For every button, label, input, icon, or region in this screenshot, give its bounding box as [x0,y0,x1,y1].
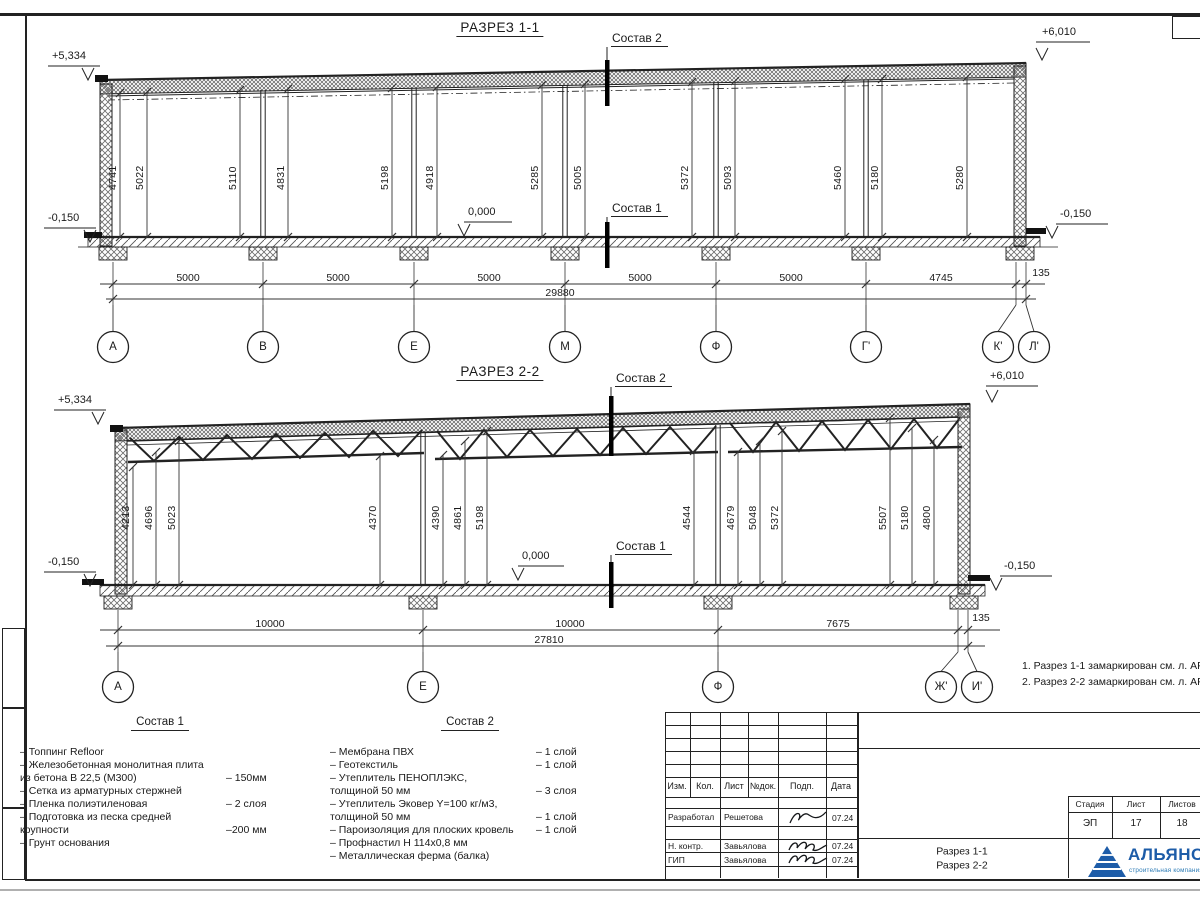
dimension-value: 4390 [430,505,442,530]
stamp-line [1160,796,1161,838]
legend-item-text: – Грунт основания [20,837,226,850]
legend-item: – Мембрана ПВХ– 1 слой [330,746,610,759]
legend-item: – Металлическая ферма (балка) [330,850,610,863]
stamp-line [665,797,857,798]
drawing-sheet: РАЗРЕЗ 1-1 Состав 2 Состав 1 +5,334 +6,0… [0,0,1200,900]
stamp-line [1068,796,1200,797]
stamp-line [665,764,857,765]
dimension-value: 5372 [769,505,781,530]
legend-item-value: – 2 слоя [226,798,300,811]
frame-left [25,13,27,880]
stamp-line [665,808,857,809]
stamp-header: Кол. [696,781,714,791]
legend-item: – Утеплитель ПЕНОПЛЭКС, толщиной 50 мм– … [330,772,610,798]
dimension-value: 4918 [424,165,436,190]
stamp-header: Лист [724,781,744,791]
axis-label: Ф [712,341,721,353]
section1-sostav1-label: Состав 1 [611,201,668,217]
dimension-value: 4861 [452,505,464,530]
dimension-value: 4544 [681,505,693,530]
section1-title: РАЗРЕЗ 1-1 [456,20,543,37]
legend-item-text: – Пленка полиэтиленовая [20,798,226,811]
stamp-header: Подп. [790,781,814,791]
dimension-label: 10000 [255,618,284,630]
legend-item-text: – Металлическая ферма (балка) [330,850,536,863]
stamp-name: Решетова [724,812,763,822]
stamp-role: Н. контр. [668,841,703,851]
dimension-value: 5022 [134,165,146,190]
section2-sostav1-label: Состав 1 [615,539,672,555]
legend-item: – Геотекстиль– 1 слой [330,759,610,772]
legend-item-text: – Топпинг Refloor [20,746,226,759]
legend-item-text: – Утеплитель Эковер Y=100 кг/м3, толщино… [330,798,536,824]
stamp-line [1068,812,1200,813]
stamp-header: Дата [831,781,851,791]
dimension-value: 4679 [725,505,737,530]
dimension-value: 5005 [572,165,584,190]
legend-item-value: – 3 слоя [536,785,610,798]
legend-item-text: – Железобетонная монолитная плита из бет… [20,759,226,785]
stamp-line [857,838,1200,839]
legend1-title: Состав 1 [131,716,189,731]
sheets-total-header: Листов [1168,799,1196,809]
stamp-header: Изм. [667,781,686,791]
dimension-value: 5372 [679,165,691,190]
dimension-value: 5023 [166,505,178,530]
axis-label: М [560,341,570,353]
legend-item-value: – 1 слой [536,746,610,759]
dimension-label: 10000 [555,618,584,630]
frame-top [0,13,1200,16]
stage-value: ЭП [1083,818,1097,829]
dimension-value: 4800 [921,505,933,530]
stamp-header: №док. [750,781,776,791]
note-line: 2. Разрез 2-2 замаркирован см. л. АР-1 [1022,674,1200,690]
elevation-label: +5,334 [58,394,92,406]
legend-item: – Железобетонная монолитная плита из бет… [20,759,300,785]
stamp-date: 07.24 [832,813,853,823]
legend-item-value: – 1 слой [536,759,610,772]
axis-label: А [109,341,117,353]
legend-item-value: – 1 слой [536,824,610,837]
dimension-value: 4831 [275,165,287,190]
dimension-value: 5048 [747,505,759,530]
legend-item-value: – 150мм [226,772,300,785]
elevation-label: +6,010 [1042,26,1076,38]
dimension-value: 5280 [954,165,966,190]
elevation-label: -0,150 [1004,560,1035,572]
stamp-role: ГИП [668,855,685,865]
section1-sostav2-label: Состав 2 [611,31,668,47]
axis-label: Е [419,681,427,693]
dimension-value: 4696 [143,505,155,530]
legend-sostav-2: Состав 2 – Мембрана ПВХ– 1 слой – Геотек… [330,712,610,863]
dimension-label: 135 [972,612,990,624]
axis-label: Ф [714,681,723,693]
legend-item: – Подготовка из песка средней крупности–… [20,811,300,837]
legend-item-text: – Геотекстиль [330,759,536,772]
stamp-line [720,712,721,878]
stamp-line [665,725,857,726]
legend-item: – Пленка полиэтиленовая– 2 слоя [20,798,300,811]
dimension-value: 5198 [474,505,486,530]
stamp-name: Завьялова [724,841,766,851]
stage-header: Стадия [1076,799,1105,809]
stamp-line [665,751,857,752]
dimension-value: 5460 [832,165,844,190]
stamp-line [778,712,779,878]
elevation-label: +5,334 [52,50,86,62]
legend-item: – Профнастил Н 114х0,8 мм [330,837,610,850]
stamp-line [1112,796,1113,838]
legend2-title: Состав 2 [441,716,499,731]
stamp-date: 07.24 [832,841,853,851]
total-dimension-label: 27810 [534,634,563,646]
dimension-value: 5507 [877,505,889,530]
drawing-name: Разрез 1-1 Разрез 2-2 [936,846,988,873]
axis-label: В [259,341,267,353]
sheets-total: 18 [1176,818,1187,829]
elevation-label: +6,010 [990,370,1024,382]
axis-label: Л' [1029,341,1039,353]
margin-stamp-box [2,807,25,880]
stamp-name: Завьялова [724,855,766,865]
elevation-label: -0,150 [48,556,79,568]
axis-label: Е [410,341,418,353]
dimension-label: 4745 [929,272,952,284]
dimension-label: 5000 [628,272,651,284]
dimension-value: 4370 [367,505,379,530]
axis-label: А [114,681,122,693]
axis-label: К' [994,341,1003,353]
stamp-line [665,866,857,867]
legend-item: – Топпинг Refloor [20,746,300,759]
stamp-line [665,738,857,739]
dimension-label: 5000 [779,272,802,284]
legend-item-text: – Утеплитель ПЕНОПЛЭКС, толщиной 50 мм [330,772,536,798]
legend-item-text: – Подготовка из песка средней крупности [20,811,226,837]
stamp-date: 07.24 [832,855,853,865]
stamp-line [665,826,857,827]
logo-company-name: АЛЬЯНС [1128,845,1200,865]
dimension-label: 5000 [326,272,349,284]
dimension-value: 4213 [120,505,132,530]
section2-title: РАЗРЕЗ 2-2 [456,364,543,381]
margin-stamp-box [2,628,25,709]
legend-item-text: – Профнастил Н 114х0,8 мм [330,837,536,850]
sheet-header: Лист [1127,799,1145,809]
elevation-label: -0,150 [1060,208,1091,220]
dimension-value: 5285 [529,165,541,190]
legend-item-text: – Сетка из арматурных стержней [20,785,226,798]
section2-sostav2-label: Состав 2 [615,371,672,387]
drawing-notes: 1. Разрез 1-1 замаркирован см. л. АР-15 … [1022,658,1200,690]
dimension-value: 5180 [869,165,881,190]
stamp-line [1068,796,1069,878]
sheet-number: 17 [1130,818,1141,829]
legend-item-value: –200 мм [226,824,300,837]
axis-label: Ж' [935,681,948,693]
corner-stamp-box [1172,16,1200,39]
dimension-label: 7675 [826,618,849,630]
stamp-line [857,712,859,878]
dimension-value: 5110 [227,166,239,190]
dimension-value: 5198 [379,165,391,190]
stamp-role: Разработал [668,812,714,822]
axis-label: И' [972,681,982,693]
dimension-label: 5000 [477,272,500,284]
legend-item-value: – 1 слой [536,811,610,824]
note-line: 1. Разрез 1-1 замаркирован см. л. АР-15 [1022,658,1200,674]
dimension-value: 4741 [107,165,119,190]
legend-item: – Грунт основания [20,837,300,850]
stamp-line [826,712,827,878]
dimension-value: 5093 [722,165,734,190]
legend-sostav-1: Состав 1 – Топпинг Refloor – Железобетон… [20,712,300,850]
stamp-line [665,852,857,853]
stamp-line [665,839,857,840]
legend-item: – Утеплитель Эковер Y=100 кг/м3, толщино… [330,798,610,824]
sheet-edge-shadow [0,889,1200,891]
zero-level-label: 0,000 [522,550,550,562]
total-dimension-label: 29880 [545,287,574,299]
zero-level-label: 0,000 [468,206,496,218]
legend-item-text: – Мембрана ПВХ [330,746,536,759]
legend-item-text: – Пароизоляция для плоских кровель [330,824,536,837]
logo-company-subtitle: строительная компания [1129,867,1200,874]
legend-item: – Пароизоляция для плоских кровель– 1 сл… [330,824,610,837]
dimension-value: 5180 [899,505,911,530]
legend-item: – Сетка из арматурных стержней [20,785,300,798]
margin-stamp-box [2,707,25,809]
stamp-line [665,777,857,778]
dimension-label: 135 [1032,267,1050,279]
axis-label: Г' [862,341,870,353]
dimension-label: 5000 [176,272,199,284]
stamp-line [857,748,1200,749]
elevation-label: -0,150 [48,212,79,224]
